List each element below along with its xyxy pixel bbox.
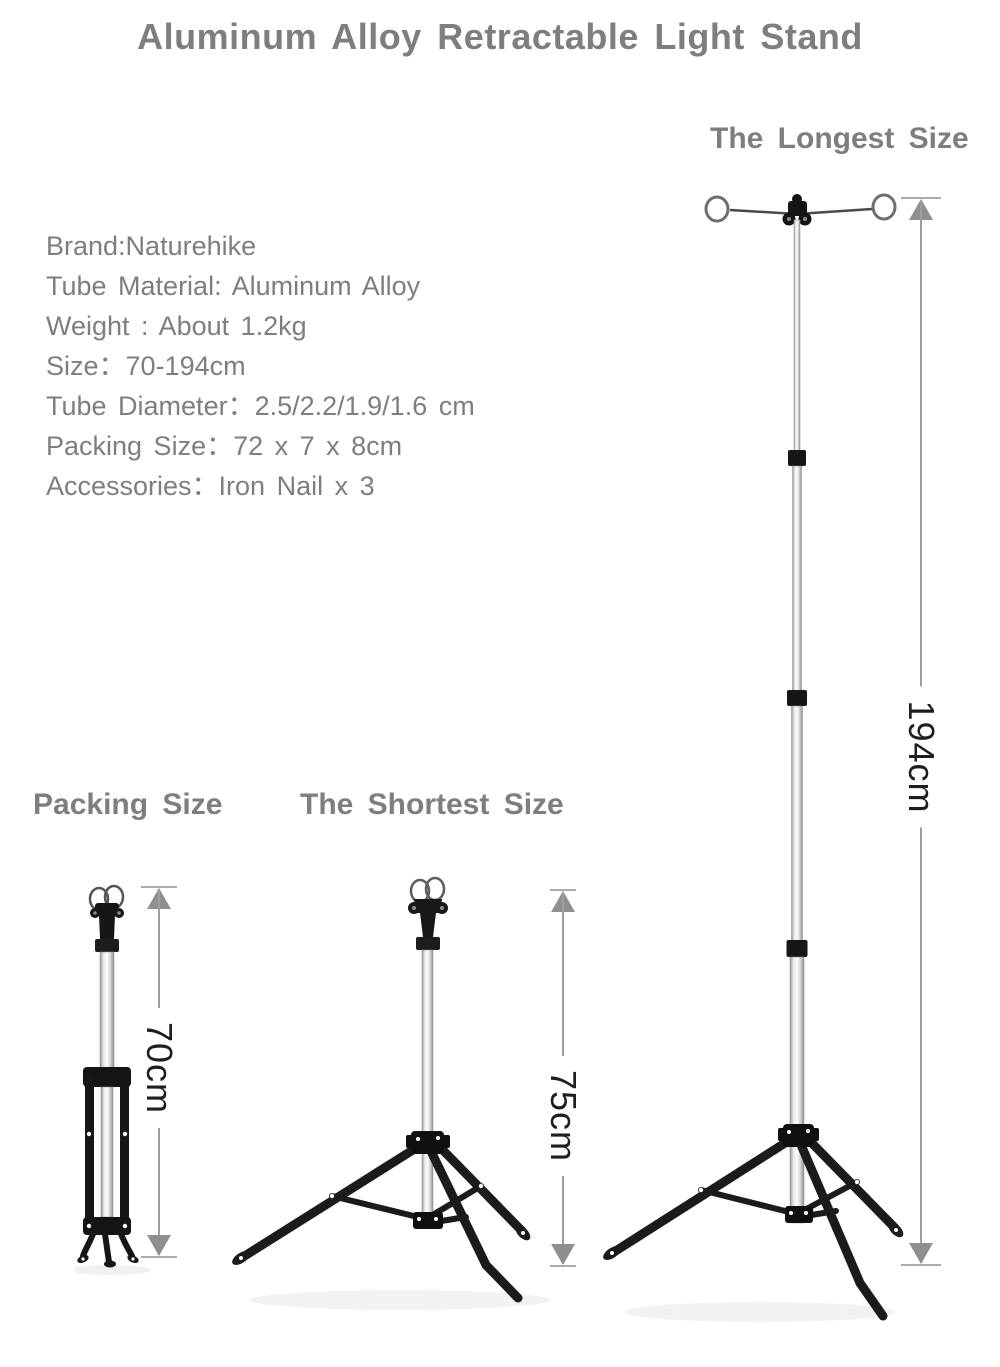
tripod-legs <box>230 1141 533 1298</box>
dimension-label-shortest: 75cm <box>540 1056 586 1176</box>
folded-hook-rings <box>411 878 444 902</box>
spec-line-accessories: Accessories：Iron Nail x 3 <box>46 466 475 506</box>
pole <box>422 950 433 1218</box>
top-hub <box>90 903 124 952</box>
dimension-label-packing: 70cm <box>136 1008 182 1128</box>
arrow-end-bar <box>550 1265 576 1267</box>
spec-line-material: Tube Material: Aluminum Alloy <box>46 266 475 306</box>
product-infographic: Aluminum Alloy Retractable Light Stand T… <box>0 0 1000 1367</box>
spec-line-tube-diameter: Tube Diameter：2.5/2.2/1.9/1.6 cm <box>46 386 475 426</box>
page-title: Aluminum Alloy Retractable Light Stand <box>0 16 1000 58</box>
section-heading-packing-size: Packing Size <box>33 788 222 822</box>
collapsed-pole <box>100 952 114 1072</box>
top-hub <box>408 899 448 950</box>
longest-stand-photo <box>600 190 940 1340</box>
arrowhead-down-icon <box>909 1243 933 1264</box>
spec-list: Brand:Naturehike Tube Material: Aluminum… <box>46 226 475 506</box>
spec-line-weight: Weight : About 1.2kg <box>46 306 475 346</box>
spec-line-packing-size: Packing Size：72 x 7 x 8cm <box>46 426 475 466</box>
arrow-end-bar <box>901 1264 941 1266</box>
shortest-stand-photo <box>230 875 590 1315</box>
arrowhead-down-icon <box>147 1235 171 1256</box>
spec-line-brand: Brand:Naturehike <box>46 226 475 266</box>
section-heading-shortest-size: The Shortest Size <box>300 788 564 822</box>
tripod-legs <box>601 1134 906 1316</box>
stand-shadow <box>625 1302 895 1322</box>
arrowhead-down-icon <box>551 1244 575 1265</box>
dimension-label-longest: 194cm <box>898 686 944 827</box>
stand-shadow <box>250 1290 550 1310</box>
spec-line-size: Size：70-194cm <box>46 346 475 386</box>
arrow-end-bar <box>141 1256 177 1258</box>
telescoping-pole <box>787 220 808 1223</box>
folded-feet <box>76 1234 140 1268</box>
folded-legs-bundle <box>83 1067 131 1235</box>
section-heading-longest-size: The Longest Size <box>710 122 969 156</box>
